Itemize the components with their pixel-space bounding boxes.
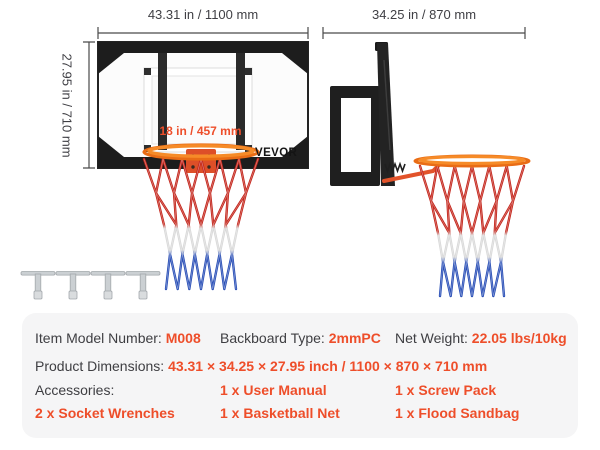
spec-row-4: 2 x Socket Wrenches 1 x Basketball Net 1…	[35, 404, 570, 422]
spec-value: 2mmPC	[329, 330, 381, 346]
spec-value: 43.31 × 34.25 × 27.95 inch / 1100 × 870 …	[168, 358, 487, 374]
spec-value: M008	[166, 330, 201, 346]
product-illustration	[0, 0, 600, 312]
spec-cell: Item Model Number: M008	[35, 329, 220, 347]
rim-side	[415, 156, 529, 166]
spec-value: 1 x Basketball Net	[220, 405, 340, 421]
spec-row-3: Accessories: 1 x User Manual 1 x Screw P…	[35, 381, 570, 399]
product-info-graphic: 43.31 in / 1100 mm 27.95 in / 710 mm 18 …	[0, 0, 600, 450]
brand-logo: VEVOR	[255, 147, 297, 159]
front-height-dimension-label: 27.95 in / 710 mm	[60, 41, 75, 171]
spec-cell: 1 x Basketball Net	[220, 404, 395, 422]
basketball-net-side	[420, 166, 524, 296]
spec-label: Item Model Number:	[35, 330, 166, 346]
socket-wrench-icon	[126, 272, 160, 300]
spec-cell: 1 x Flood Sandbag	[395, 404, 570, 422]
side-depth-dimension-label: 34.25 in / 870 mm	[323, 7, 525, 22]
spec-cell: 2 x Socket Wrenches	[35, 404, 220, 422]
spec-value: 2 x Socket Wrenches	[35, 405, 175, 421]
spec-label: Backboard Type:	[220, 330, 329, 346]
spec-row-2: Product Dimensions: 43.31 × 34.25 × 27.9…	[35, 357, 570, 375]
front-width-dimension-label: 43.31 in / 1100 mm	[98, 7, 308, 22]
spec-row-1: Item Model Number: M008 Backboard Type: …	[35, 329, 570, 347]
spec-label: Accessories:	[35, 382, 114, 398]
socket-wrench-icon	[56, 272, 90, 300]
spec-cell: 1 x User Manual	[220, 381, 395, 399]
socket-wrench-icon	[21, 272, 55, 300]
spec-value: 22.05 lbs/10kg	[472, 330, 567, 346]
spec-cell: Backboard Type: 2mmPC	[220, 329, 395, 347]
spec-cell: Accessories:	[35, 381, 220, 399]
spec-value: 1 x Flood Sandbag	[395, 405, 519, 421]
spec-label: Product Dimensions:	[35, 358, 168, 374]
spec-value: 1 x Screw Pack	[395, 382, 496, 398]
spec-value: 1 x User Manual	[220, 382, 327, 398]
socket-wrench-icon	[91, 272, 125, 300]
rim-diameter-dimension-label: 18 in / 457 mm	[143, 124, 258, 139]
spec-cell: 1 x Screw Pack	[395, 381, 570, 399]
spec-label: Net Weight:	[395, 330, 472, 346]
spec-panel: Item Model Number: M008 Backboard Type: …	[22, 313, 578, 438]
spec-cell: Net Weight: 22.05 lbs/10kg	[395, 329, 570, 347]
basketball-net-front	[144, 159, 258, 289]
socket-wrenches-illustration	[21, 272, 160, 300]
